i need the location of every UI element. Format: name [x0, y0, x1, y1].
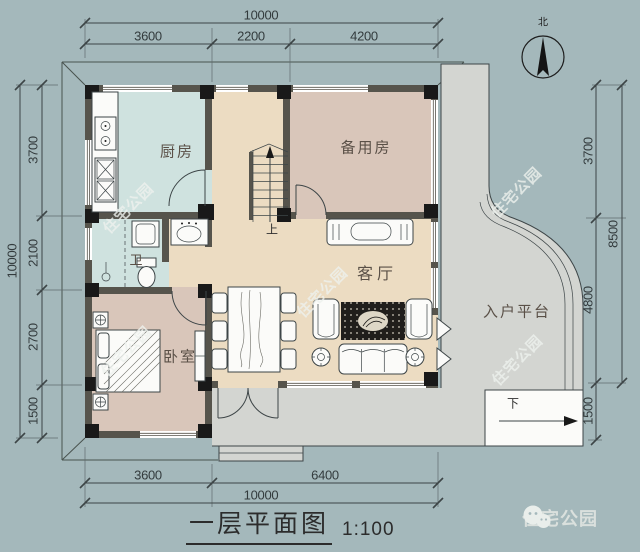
chair: [212, 321, 227, 341]
window: [140, 431, 196, 438]
dim-top-seg-1: 3600: [134, 29, 162, 44]
steps-down-label: 下: [507, 395, 519, 412]
window: [431, 100, 438, 205]
window: [287, 381, 352, 388]
chair: [281, 321, 296, 341]
dining-set: [212, 287, 296, 372]
stair-side-wall: [249, 152, 253, 220]
brand-footer: 住宅公园: [522, 505, 598, 531]
dining-table: [228, 287, 280, 372]
dim-right-seg-1: 3700: [581, 137, 596, 165]
dim-top-total: 10000: [244, 8, 279, 23]
dim-right-outer: 8500: [606, 220, 621, 248]
window: [103, 85, 172, 92]
dim-top-seg-2: 2200: [237, 29, 265, 44]
dim-left-total: 10000: [5, 244, 20, 279]
title-text: 一层平面图: [186, 504, 332, 545]
dim-right-seg-3: 1500: [581, 397, 596, 425]
compass-north-label: 北: [538, 14, 548, 29]
armchair: [406, 299, 432, 339]
window: [431, 268, 438, 308]
compass: [522, 36, 564, 78]
kitchen-sink: [95, 158, 116, 202]
rug-motif: [358, 311, 388, 331]
dim-bottom-seg-2: 6400: [311, 468, 339, 483]
window: [360, 381, 426, 388]
dim-bottom-total: 10000: [244, 488, 279, 503]
window: [85, 228, 92, 260]
room-label-spare: 备用房: [340, 137, 391, 158]
wechat-icon: [522, 505, 552, 531]
room-label-living: 客厅: [357, 260, 397, 284]
room-label-entry-platform: 入户平台: [483, 301, 551, 322]
dim-left-seg-4: 1500: [26, 397, 41, 425]
dim-bottom-seg-1: 3600: [134, 468, 162, 483]
window: [293, 85, 368, 92]
dim-left-seg-3: 2700: [26, 323, 41, 351]
chair: [212, 349, 227, 369]
south-stoop: [219, 446, 303, 461]
window: [216, 85, 248, 92]
floor-plan-page: 10000 3600 2200 4200 10000 3700 2100 270…: [0, 0, 640, 552]
title-scale: 1:100: [342, 519, 395, 545]
room-label-bedroom: 卧室: [163, 346, 197, 367]
room-label-kitchen: 厨房: [160, 141, 194, 162]
room-label-bath: 卫: [129, 250, 142, 269]
sofa: [339, 344, 407, 374]
dim-left-seg-1: 3700: [26, 136, 41, 164]
dim-left-seg-2: 2100: [26, 239, 41, 267]
stairs-up-label: 上: [266, 221, 278, 238]
kitchen-fixtures: [92, 92, 118, 212]
compass-needle: [537, 37, 549, 76]
dim-top-seg-3: 4200: [350, 29, 378, 44]
window: [431, 222, 438, 262]
chair: [281, 349, 296, 369]
drawing-title: 一层平面图 1:100: [186, 504, 395, 545]
window: [85, 140, 92, 205]
dim-right-seg-2: 4800: [581, 286, 596, 314]
chair: [212, 293, 227, 313]
stove: [95, 117, 116, 150]
